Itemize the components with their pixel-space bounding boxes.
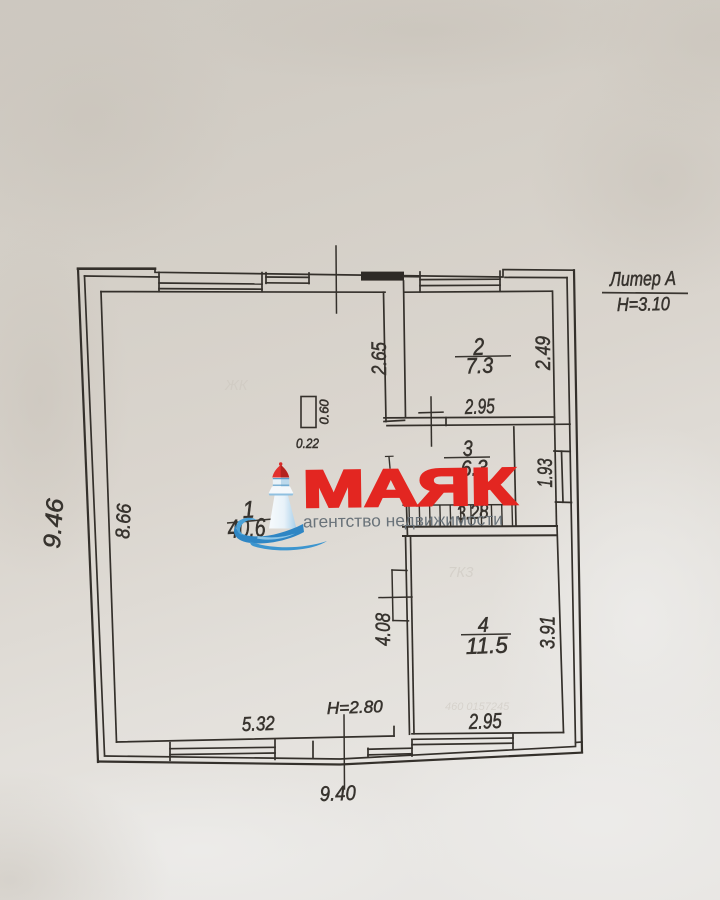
svg-text:9.40: 9.40 <box>319 782 356 806</box>
svg-text:2.49: 2.49 <box>531 336 555 371</box>
svg-text:Литер А: Литер А <box>608 268 676 291</box>
svg-text:460 0157245: 460 0157245 <box>445 701 510 713</box>
svg-text:11.5: 11.5 <box>465 632 508 659</box>
svg-text:0.60: 0.60 <box>318 399 332 424</box>
svg-text:7К3: 7К3 <box>448 564 474 581</box>
svg-text:9.46: 9.46 <box>39 497 69 549</box>
svg-text:Н=2.80: Н=2.80 <box>326 697 383 718</box>
svg-text:5.32: 5.32 <box>241 713 275 736</box>
svg-text:1.93: 1.93 <box>534 458 557 487</box>
svg-text:4.08: 4.08 <box>372 613 395 646</box>
svg-text:2.65: 2.65 <box>367 341 391 376</box>
svg-text:агентство недвижимости: агентство недвижимости <box>303 510 503 532</box>
svg-text:ЖК: ЖК <box>224 377 249 394</box>
svg-text:7.3: 7.3 <box>465 353 494 379</box>
svg-text:Н=3.10: Н=3.10 <box>617 294 671 316</box>
svg-text:8.66: 8.66 <box>112 502 136 539</box>
svg-text:3.91: 3.91 <box>537 616 560 649</box>
svg-text:0.22: 0.22 <box>296 435 319 451</box>
svg-text:2.95: 2.95 <box>464 395 496 419</box>
